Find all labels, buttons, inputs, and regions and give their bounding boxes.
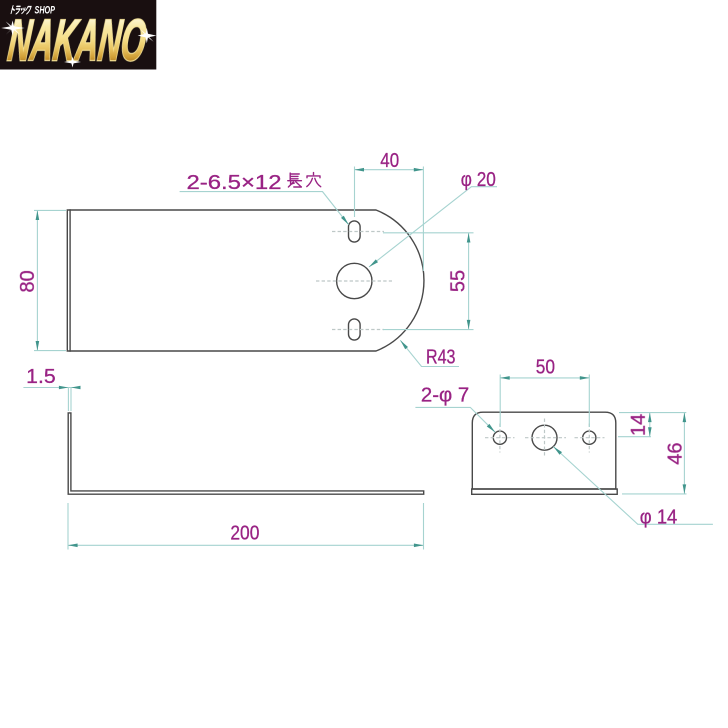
svg-text:2-φ 7: 2-φ 7 [421, 385, 469, 407]
svg-text:14: 14 [628, 414, 650, 436]
svg-text:NAKANO: NAKANO [5, 8, 149, 73]
svg-text:80: 80 [17, 270, 39, 292]
svg-text:50: 50 [536, 357, 555, 379]
svg-text:40: 40 [380, 150, 399, 172]
svg-text:46: 46 [665, 442, 687, 464]
svg-text:R43: R43 [426, 347, 456, 369]
svg-text:φ 20: φ 20 [461, 169, 496, 191]
svg-text:200: 200 [230, 523, 259, 545]
svg-text:2-6.5×12: 2-6.5×12 [187, 172, 282, 194]
svg-text:φ 14: φ 14 [640, 507, 678, 529]
svg-text:55: 55 [447, 270, 469, 292]
svg-text:1.5: 1.5 [26, 366, 56, 388]
